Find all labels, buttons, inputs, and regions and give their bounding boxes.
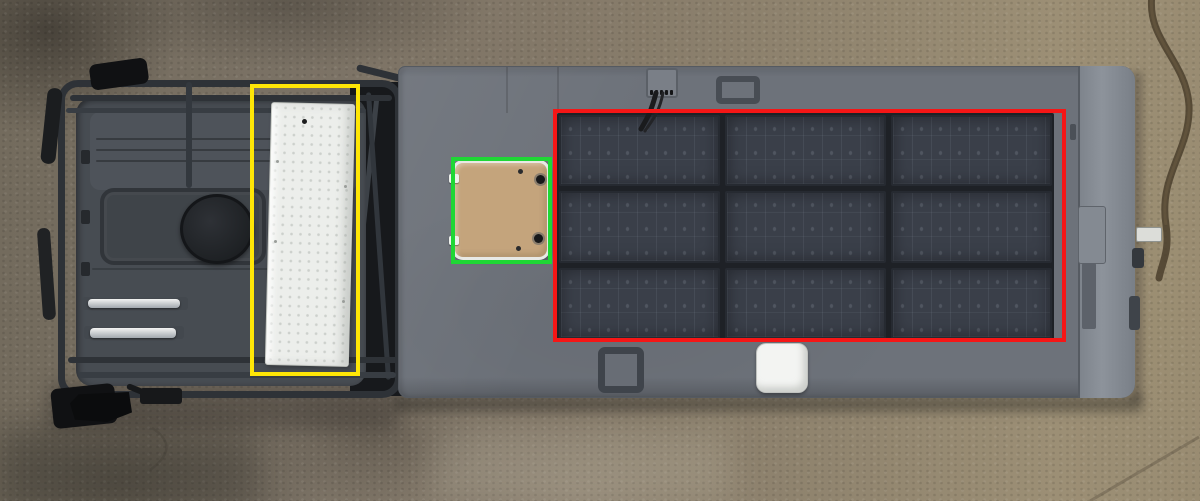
rack-mount [81,262,90,276]
side-fitting [1129,296,1140,330]
solar-panel [725,268,886,339]
hatch-dot [518,169,523,174]
white-storage-box [265,102,355,367]
cable-end [650,90,653,95]
roof-accessory [140,388,182,404]
screw [344,185,347,188]
side-fitting [1070,124,1076,140]
hatch-hinge [449,236,459,245]
hatch-hinge [449,174,459,183]
cable-end [665,90,668,95]
screw [342,300,345,303]
cable-end [655,90,658,95]
rack-mount [81,210,90,224]
solar-panel [559,191,720,262]
roof-seam [506,67,508,113]
roof-vent-frame [716,76,760,104]
side-bracket [1082,263,1096,329]
hatch-knob [536,175,545,184]
solar-panel [559,115,720,186]
cable-end [670,90,673,95]
light-concrete-patch [430,428,730,500]
aerial-photo-scene [0,0,1200,501]
rack-rail [70,95,392,101]
solar-panel [891,268,1052,339]
solar-panel [725,115,886,186]
rack-mount [81,150,90,164]
screw [274,240,277,243]
cable-end [660,90,663,95]
solar-panel [891,115,1052,186]
roof-vent-frame [598,347,644,393]
solar-panel-array [557,113,1054,341]
door-handle [1136,227,1162,242]
solar-panel [559,268,720,339]
roof-hatch [452,160,550,260]
box-latch-dot [302,119,307,124]
roof-seam [557,67,559,111]
hatch-knob [534,234,543,243]
white-roof-vent [756,343,808,393]
screw [276,160,279,163]
solar-panel [725,191,886,262]
solar-panel [891,191,1052,262]
rack-crossbar [186,82,192,188]
side-bracket [1078,206,1106,264]
hatch-dot [516,246,521,251]
rack-rail [78,372,396,378]
side-fitting [1132,248,1144,268]
dark-concrete-patch [0,430,260,501]
